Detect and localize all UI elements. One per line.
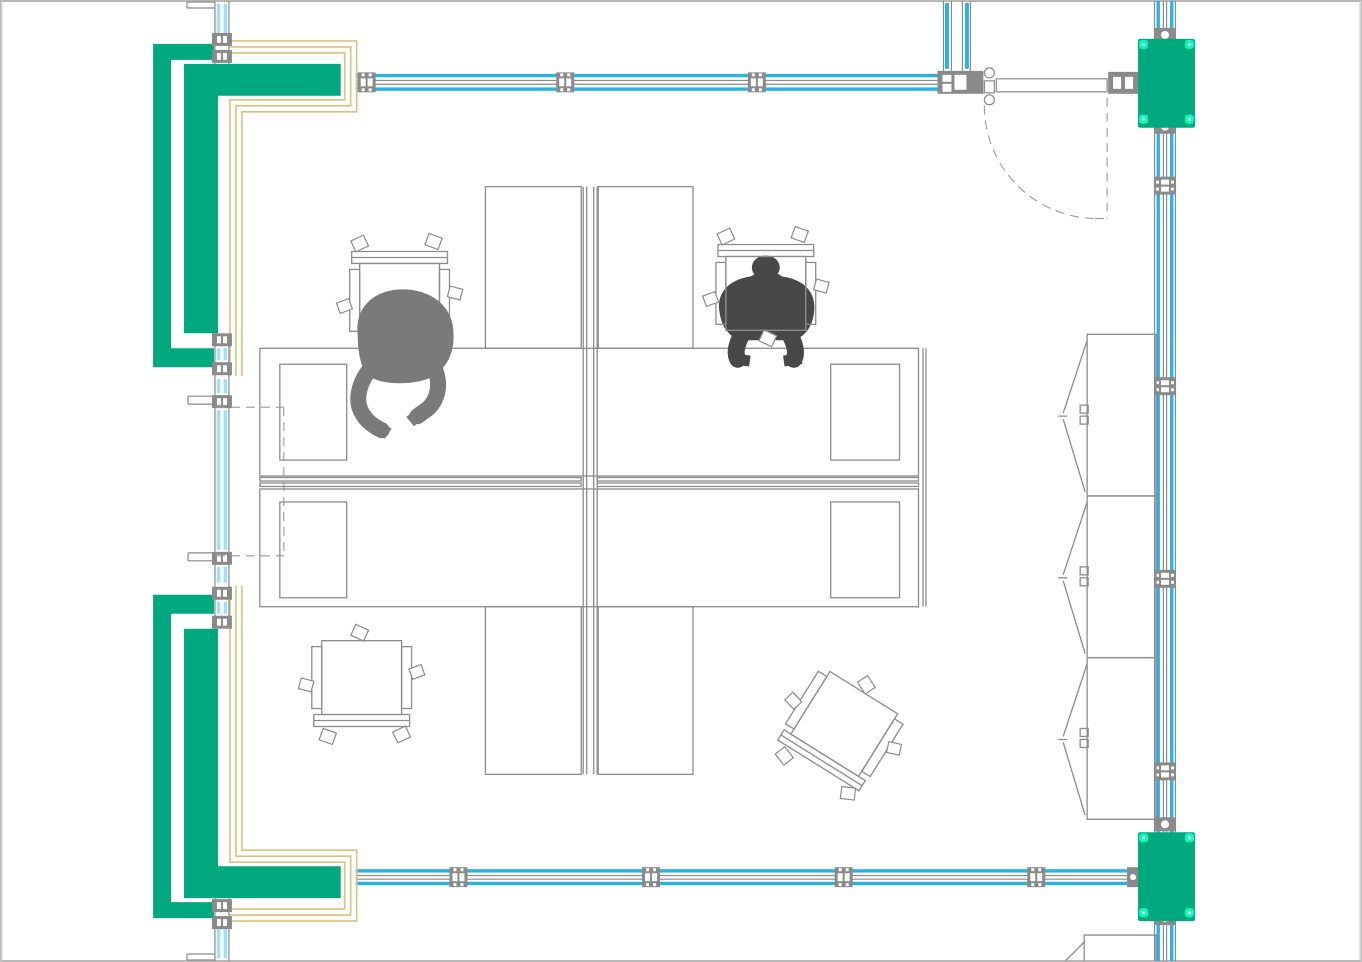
service-shaft-top-left bbox=[153, 1, 357, 377]
door-pivot bbox=[984, 81, 994, 93]
desk-divider bbox=[260, 478, 581, 481]
door-strike-block bbox=[1108, 72, 1138, 94]
privacy-screen bbox=[485, 187, 581, 349]
person-right bbox=[719, 255, 814, 366]
desk-divider bbox=[597, 478, 918, 481]
center-spine-partition bbox=[583, 187, 597, 775]
door-hinge-top bbox=[984, 68, 994, 78]
door-swing-arc bbox=[984, 106, 1097, 219]
right-curtain-wall bbox=[1155, 1, 1176, 961]
bottom-curtain-wall bbox=[356, 867, 1139, 887]
wall-connector-bottom bbox=[188, 553, 215, 561]
entry-door bbox=[984, 68, 1138, 219]
desk-inset-panel bbox=[831, 502, 900, 598]
person-left bbox=[357, 289, 453, 438]
cabinet-unit-partial bbox=[1065, 935, 1156, 961]
cabinet-unit bbox=[1058, 658, 1156, 820]
wall-connector-top bbox=[188, 396, 215, 404]
desk-divider bbox=[260, 483, 581, 486]
desk-divider bbox=[597, 483, 918, 486]
wall-block-bottom-right bbox=[1138, 832, 1195, 921]
wall-block-top-right bbox=[1138, 39, 1195, 128]
chair-empty-right bbox=[755, 645, 926, 814]
desk-end-panel bbox=[923, 348, 926, 606]
chair-empty-left bbox=[298, 624, 424, 744]
door-leaf bbox=[996, 79, 1107, 92]
cabinet-unit bbox=[1058, 334, 1156, 496]
door-swing-lines bbox=[1095, 98, 1109, 219]
door-hinge-bottom bbox=[984, 95, 994, 105]
floor-plan-drawing bbox=[1, 1, 1361, 961]
privacy-screen bbox=[598, 187, 693, 349]
desk-inset-panel bbox=[831, 364, 900, 460]
privacy-screen bbox=[598, 607, 693, 775]
desk-inset-panel bbox=[280, 364, 347, 460]
floor-plan-canvas bbox=[0, 0, 1362, 962]
desk-bottom-row bbox=[260, 489, 919, 607]
top-curtain-wall bbox=[356, 1, 984, 94]
cabinet-unit bbox=[1058, 496, 1156, 658]
privacy-screen bbox=[485, 607, 581, 775]
desk-inset-panel bbox=[280, 502, 347, 598]
